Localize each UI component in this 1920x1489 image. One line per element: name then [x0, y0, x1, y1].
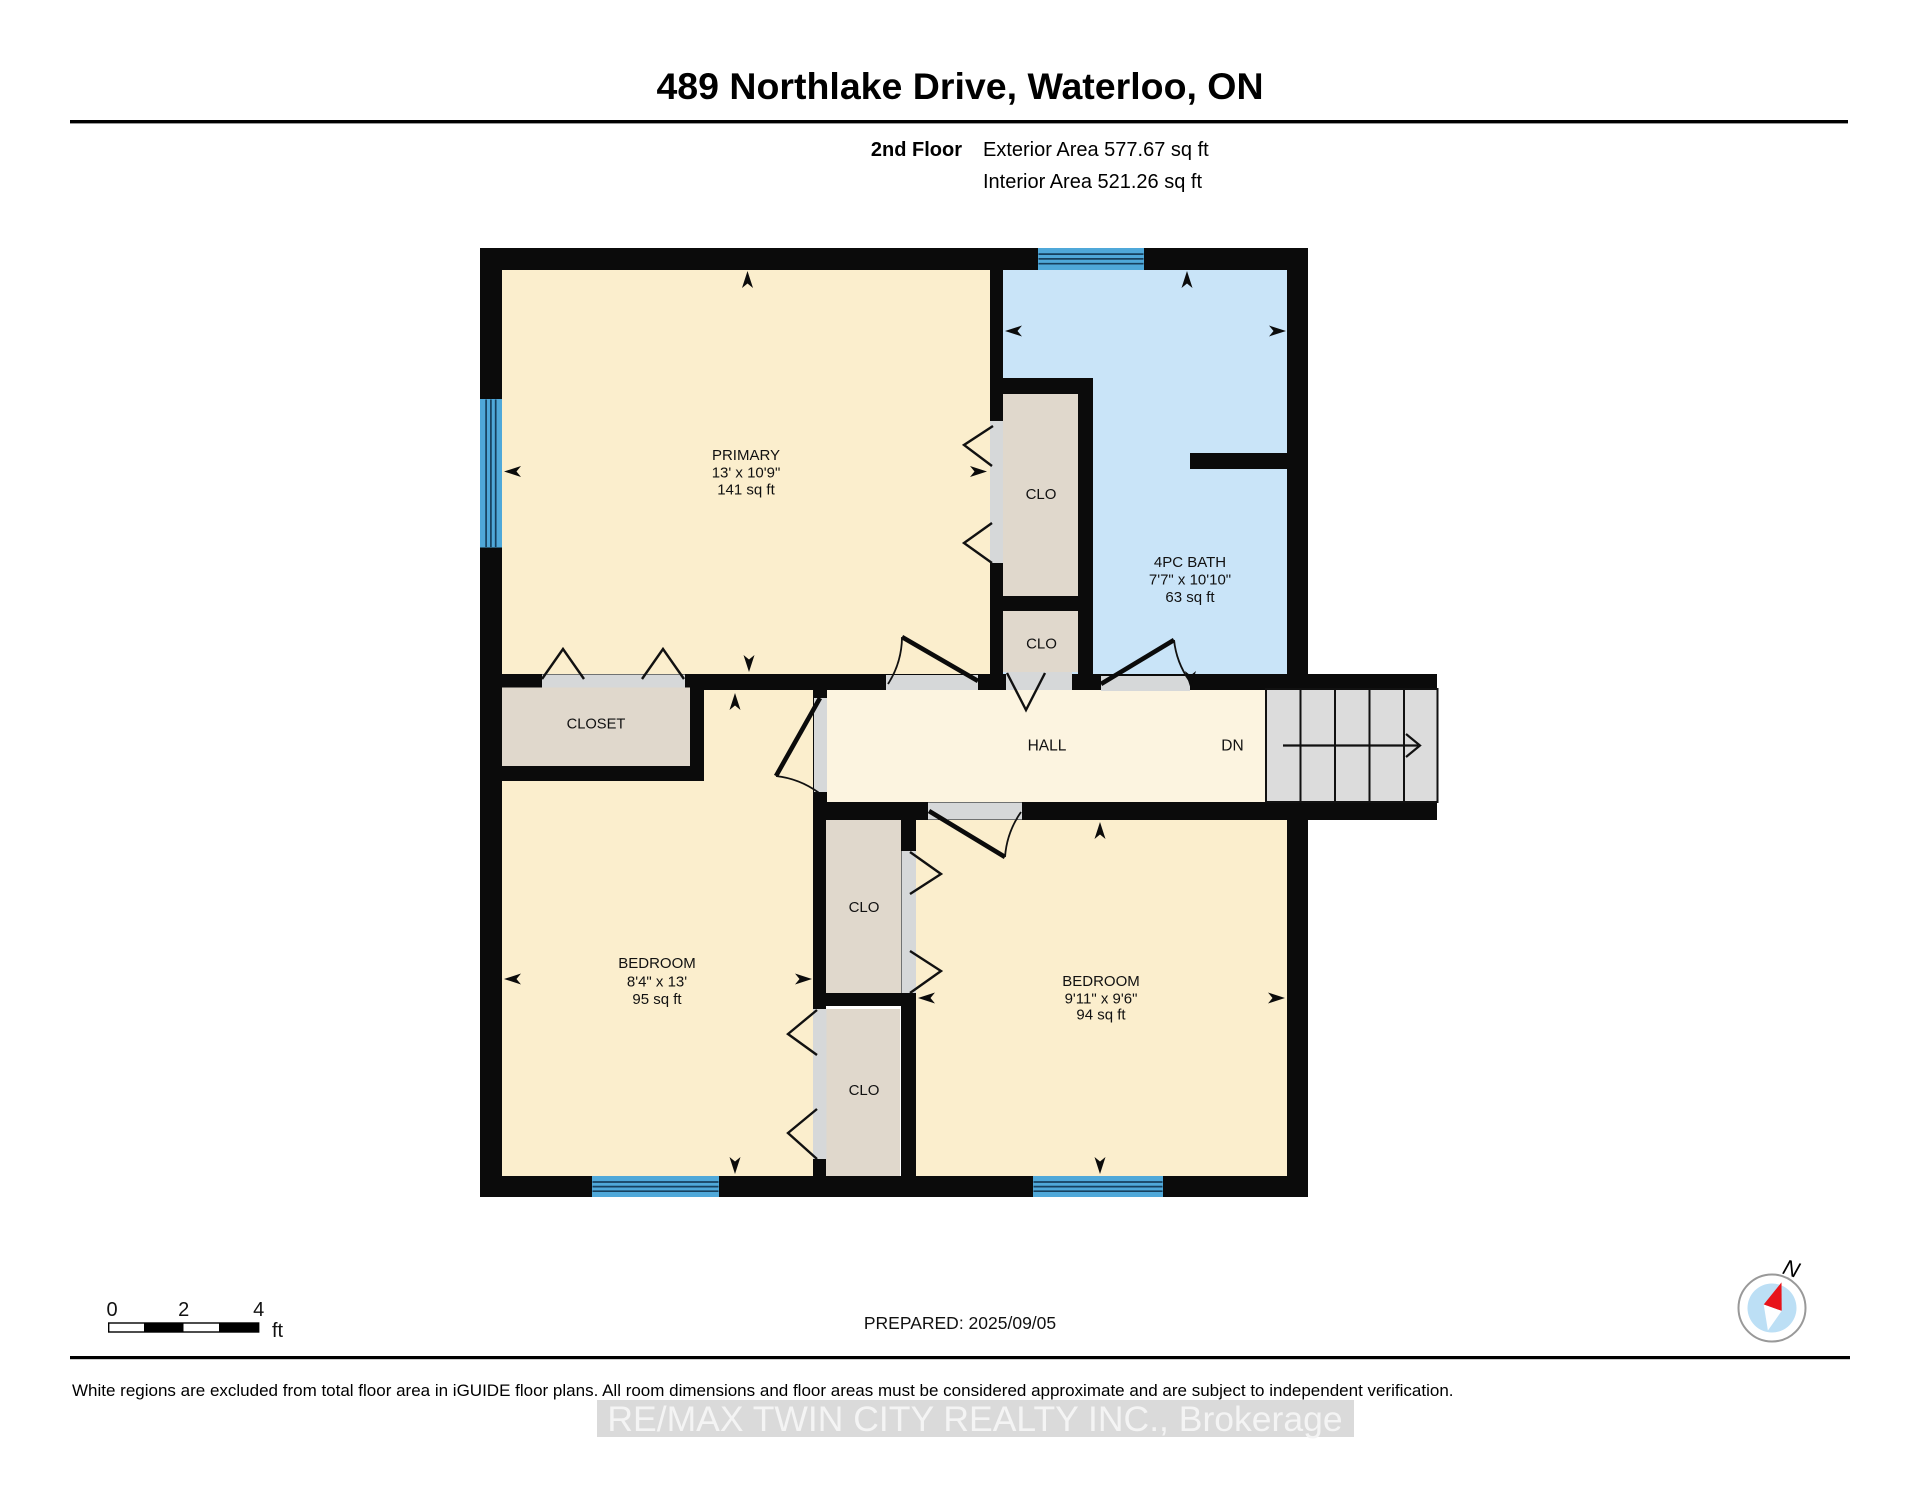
svg-text:PRIMARY: PRIMARY [712, 447, 780, 464]
svg-text:CLO: CLO [849, 899, 880, 916]
svg-text:489 Northlake Drive, Waterloo,: 489 Northlake Drive, Waterloo, ON [656, 65, 1263, 107]
svg-text:HALL: HALL [1028, 738, 1067, 755]
svg-text:ft: ft [272, 1320, 284, 1342]
svg-text:PREPARED: 2025/09/05: PREPARED: 2025/09/05 [864, 1313, 1056, 1333]
svg-text:4: 4 [253, 1299, 264, 1321]
svg-text:BEDROOM: BEDROOM [618, 955, 696, 972]
svg-text:141 sq ft: 141 sq ft [717, 482, 775, 499]
svg-text:Exterior Area 577.67 sq ft: Exterior Area 577.67 sq ft [983, 139, 1209, 161]
svg-text:13' x 10'9": 13' x 10'9" [712, 465, 781, 482]
svg-text:95 sq ft: 95 sq ft [632, 991, 682, 1008]
svg-text:7'7" x 10'10": 7'7" x 10'10" [1149, 572, 1231, 589]
svg-text:CLOSET: CLOSET [567, 717, 626, 733]
svg-text:94 sq ft: 94 sq ft [1076, 1007, 1126, 1024]
svg-text:DN: DN [1221, 738, 1243, 755]
svg-text:9'11" x 9'6": 9'11" x 9'6" [1065, 991, 1138, 1008]
svg-text:2nd Floor: 2nd Floor [871, 139, 962, 161]
svg-text:CLO: CLO [849, 1082, 880, 1099]
svg-text:BEDROOM: BEDROOM [1062, 973, 1140, 990]
svg-text:63 sq ft: 63 sq ft [1165, 589, 1215, 606]
svg-text:2: 2 [178, 1299, 189, 1321]
svg-text:White regions are excluded fro: White regions are excluded from total fl… [72, 1381, 1454, 1400]
svg-text:Interior Area 521.26 sq ft: Interior Area 521.26 sq ft [983, 171, 1202, 193]
svg-text:4PC BATH: 4PC BATH [1154, 554, 1226, 571]
svg-text:CLO: CLO [1026, 486, 1057, 503]
svg-text:RE/MAX TWIN CITY REALTY INC.,: RE/MAX TWIN CITY REALTY INC., Brokerage [607, 1399, 1342, 1439]
svg-text:8'4" x 13': 8'4" x 13' [627, 974, 687, 991]
svg-text:CLO: CLO [1026, 636, 1057, 653]
svg-text:0: 0 [106, 1299, 117, 1321]
